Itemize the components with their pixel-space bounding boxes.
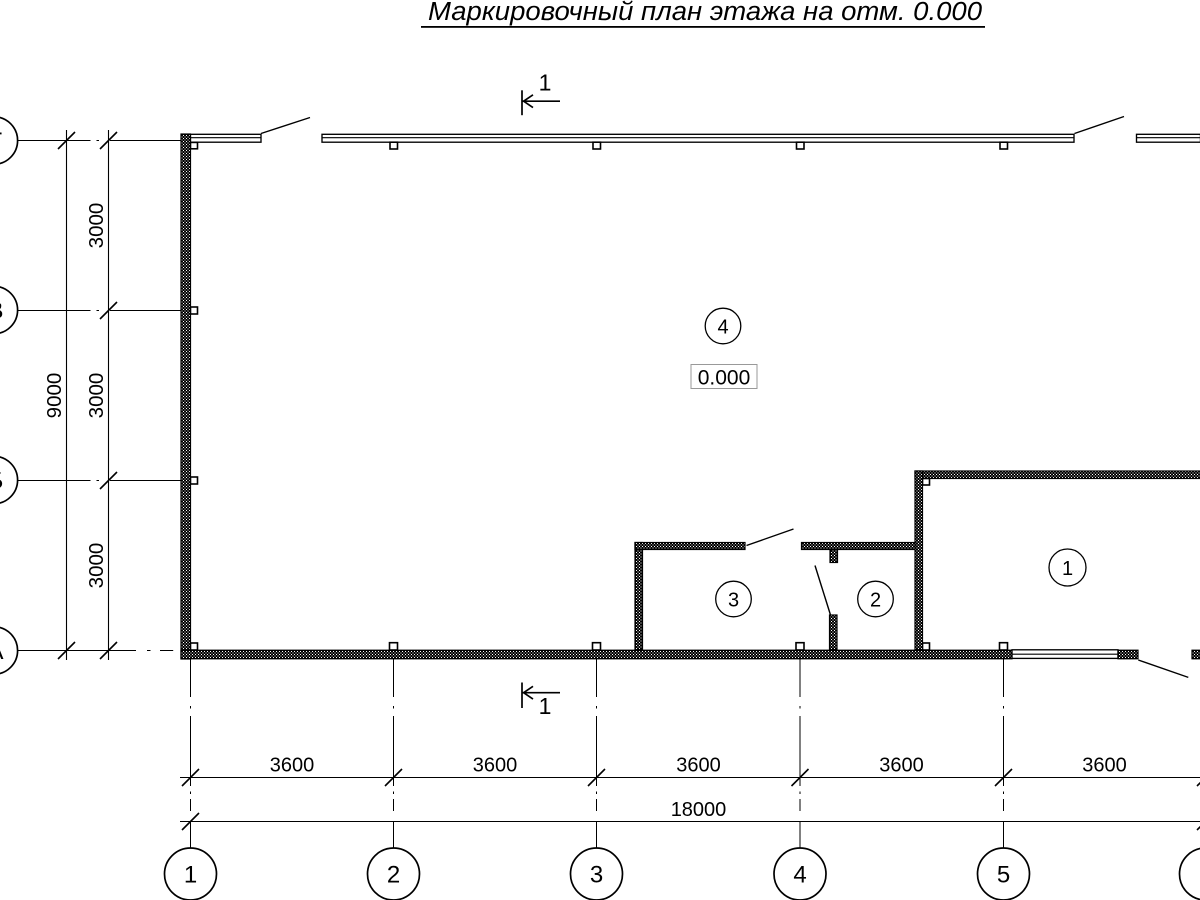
svg-text:1: 1 xyxy=(184,862,197,889)
svg-text:Б: Б xyxy=(0,468,3,495)
svg-text:1: 1 xyxy=(539,693,552,719)
svg-text:3600: 3600 xyxy=(1082,754,1127,776)
svg-text:3: 3 xyxy=(590,862,603,889)
svg-text:4: 4 xyxy=(717,316,728,338)
svg-text:3: 3 xyxy=(728,589,739,611)
svg-text:Маркировочный план этажа на от: Маркировочный план этажа на отм. 0.000 xyxy=(428,0,982,26)
svg-text:1: 1 xyxy=(539,69,552,95)
svg-text:5: 5 xyxy=(997,862,1010,889)
svg-text:Г: Г xyxy=(0,128,2,155)
svg-text:3600: 3600 xyxy=(676,754,721,776)
svg-text:3000: 3000 xyxy=(85,543,108,589)
svg-text:3000: 3000 xyxy=(85,373,108,419)
svg-text:18000: 18000 xyxy=(671,799,727,821)
svg-text:В: В xyxy=(0,298,4,325)
svg-text:2: 2 xyxy=(387,862,400,889)
svg-text:0.000: 0.000 xyxy=(698,366,751,389)
svg-text:3600: 3600 xyxy=(473,754,518,776)
svg-text:9000: 9000 xyxy=(43,373,66,419)
svg-text:4: 4 xyxy=(793,862,806,889)
svg-text:3600: 3600 xyxy=(879,754,924,776)
svg-text:3600: 3600 xyxy=(270,754,315,776)
svg-text:А: А xyxy=(0,638,4,665)
svg-text:2: 2 xyxy=(870,589,881,611)
svg-text:1: 1 xyxy=(1062,558,1073,580)
svg-text:3000: 3000 xyxy=(85,203,108,249)
